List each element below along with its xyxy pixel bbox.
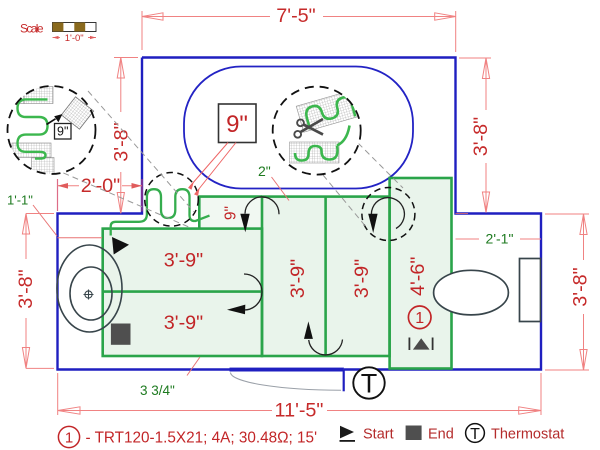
svg-text:Thermostat: Thermostat (491, 427, 564, 443)
svg-text:2": 2" (258, 163, 271, 179)
svg-text:Scale: Scale (20, 22, 44, 36)
svg-text:End: End (428, 427, 454, 443)
svg-text:3'-9": 3'-9" (164, 312, 203, 334)
svg-text:- TRT120-1.5X21; 4A; 30.48Ω; 1: - TRT120-1.5X21; 4A; 30.48Ω; 15' (86, 430, 318, 447)
svg-text:9": 9" (222, 206, 239, 220)
svg-text:9": 9" (226, 111, 248, 138)
svg-text:11'-5": 11'-5" (275, 400, 324, 422)
svg-text:3'-9": 3'-9" (287, 259, 309, 298)
svg-text:3'-8": 3'-8" (110, 122, 132, 161)
svg-text:2'-0": 2'-0" (81, 175, 120, 197)
svg-text:1'-1": 1'-1" (7, 193, 33, 208)
svg-text:3'-8": 3'-8" (470, 117, 492, 156)
svg-text:7'-5": 7'-5" (276, 5, 315, 27)
svg-text:1'-0": 1'-0" (65, 33, 84, 44)
svg-text:T: T (361, 369, 378, 399)
svg-text:3'-9": 3'-9" (164, 250, 203, 272)
svg-text:3'-8": 3'-8" (570, 267, 592, 306)
svg-text:4'-6": 4'-6" (407, 257, 429, 296)
svg-text:3 3/4": 3 3/4" (140, 383, 175, 398)
svg-text:3'-8": 3'-8" (15, 269, 37, 308)
svg-text:2'-1": 2'-1" (486, 231, 514, 247)
svg-text:1: 1 (415, 310, 424, 327)
svg-text:Start: Start (363, 427, 394, 443)
svg-text:3'-9": 3'-9" (351, 259, 373, 298)
svg-text:T: T (470, 426, 480, 443)
svg-text:9": 9" (57, 125, 68, 139)
svg-text:1: 1 (65, 430, 73, 447)
